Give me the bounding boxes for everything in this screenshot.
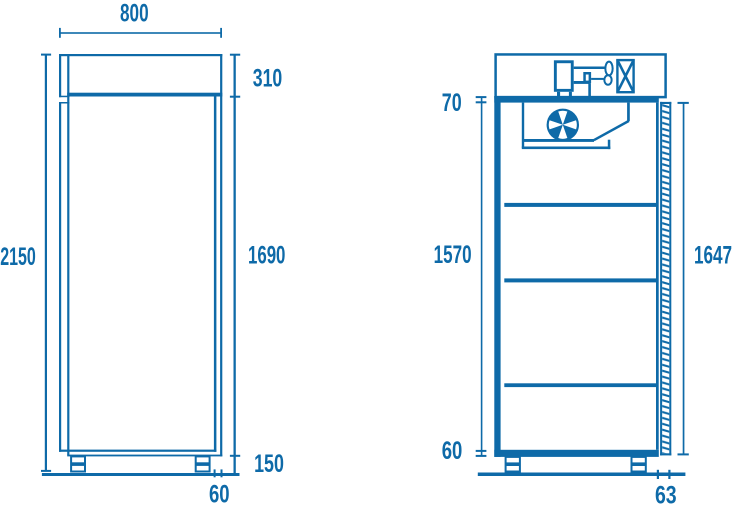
- svg-text:70: 70: [442, 89, 462, 117]
- svg-text:1570: 1570: [434, 241, 472, 269]
- svg-text:63: 63: [655, 481, 677, 509]
- svg-text:1690: 1690: [248, 241, 286, 269]
- svg-text:150: 150: [254, 450, 284, 478]
- svg-text:310: 310: [253, 64, 283, 92]
- svg-text:60: 60: [442, 437, 463, 465]
- svg-text:1647: 1647: [694, 241, 732, 269]
- svg-text:2150: 2150: [0, 243, 36, 271]
- svg-text:800: 800: [120, 0, 149, 28]
- svg-text:60: 60: [209, 481, 230, 509]
